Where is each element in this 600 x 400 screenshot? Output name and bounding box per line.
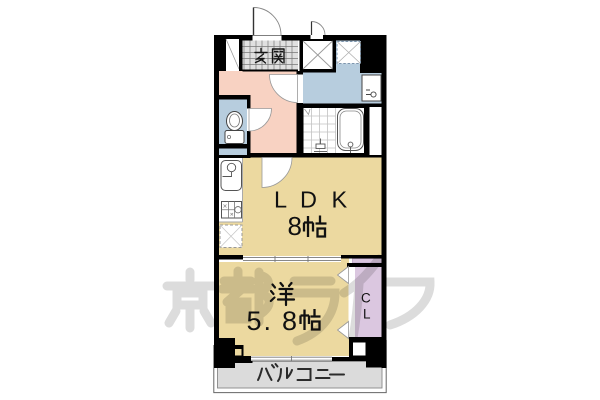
svg-text:8: 8 (282, 306, 297, 336)
svg-text:8: 8 (288, 211, 302, 241)
svg-text:D: D (300, 187, 317, 213)
svg-text:L: L (274, 187, 287, 213)
svg-text:L: L (363, 307, 371, 322)
svg-text:K: K (332, 187, 348, 213)
